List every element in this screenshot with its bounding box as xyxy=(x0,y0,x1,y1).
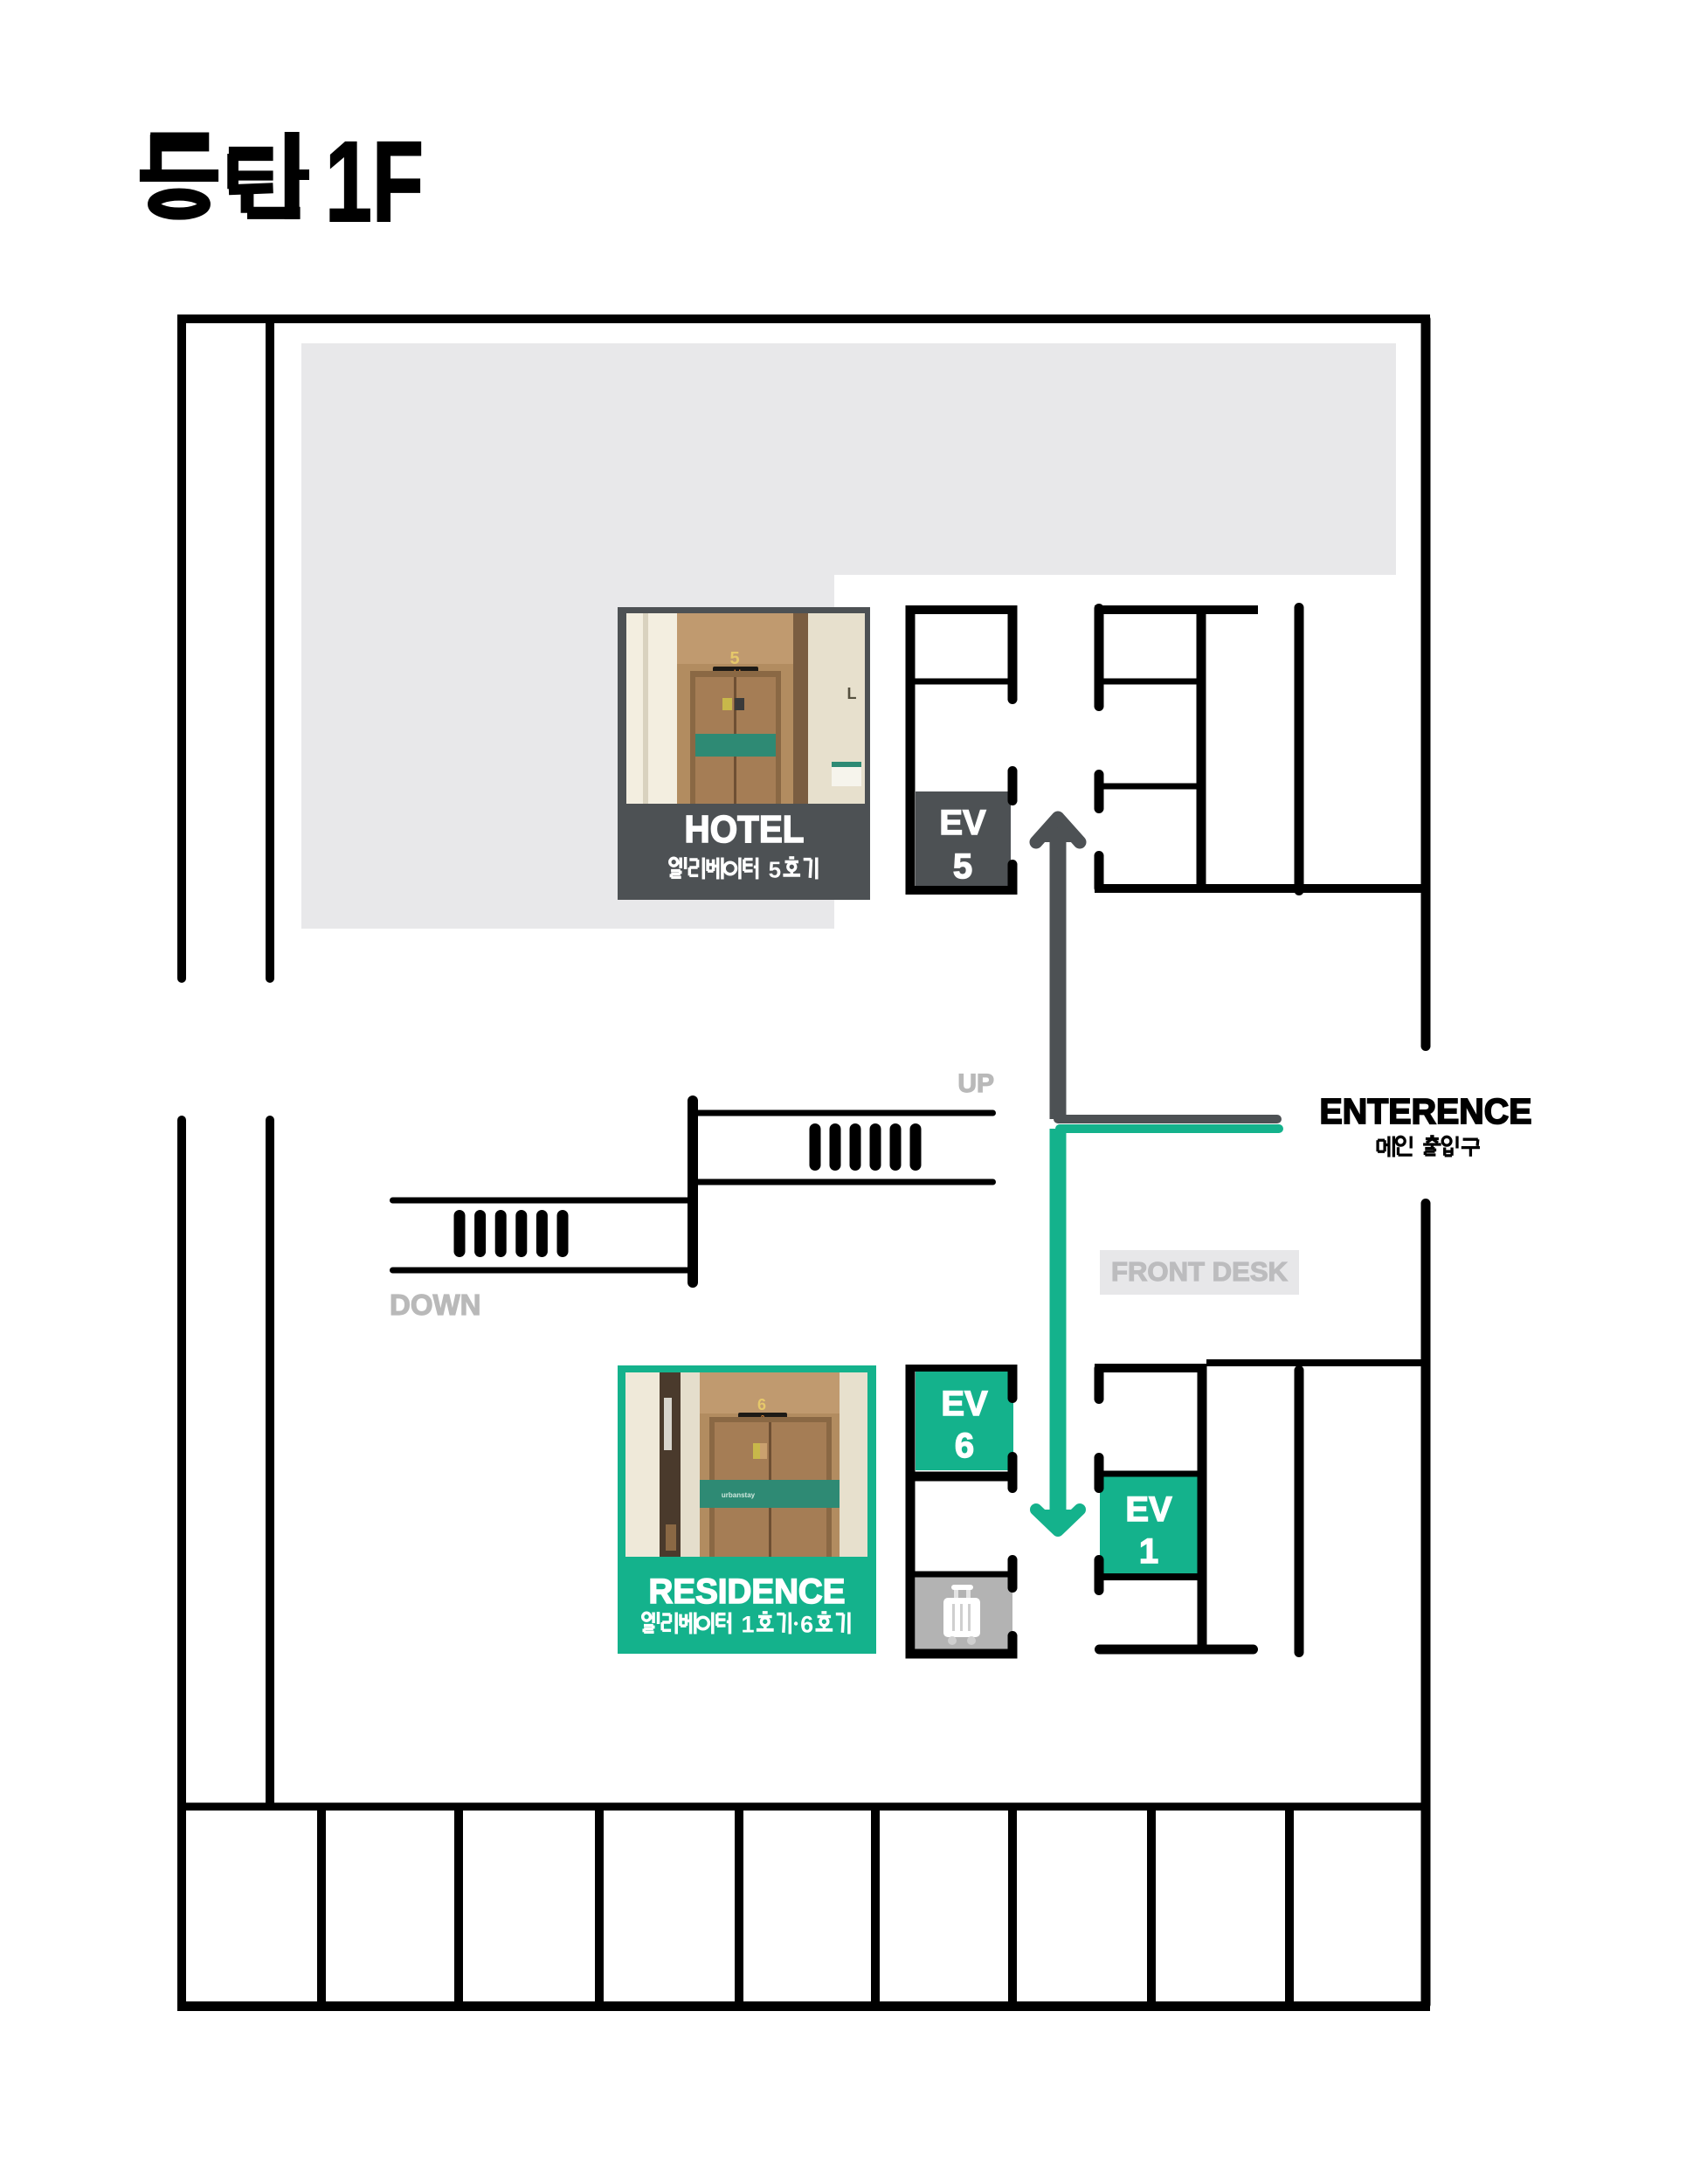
svg-text:UP: UP xyxy=(957,1069,994,1098)
svg-text:1F: 1F xyxy=(325,117,424,245)
svg-text:urbanstay: urbanstay xyxy=(722,1491,756,1499)
svg-text:EV: EV xyxy=(939,804,986,842)
svg-text:EV: EV xyxy=(941,1385,988,1423)
svg-text:5: 5 xyxy=(729,649,739,668)
svg-text:ENTERENCE: ENTERENCE xyxy=(1320,1091,1532,1131)
svg-text:6: 6 xyxy=(955,1427,974,1465)
svg-text:EV: EV xyxy=(1125,1490,1172,1529)
svg-text:1: 1 xyxy=(742,1611,755,1637)
svg-text:DOWN: DOWN xyxy=(390,1289,480,1321)
svg-text:6: 6 xyxy=(800,1611,813,1637)
svg-text:FRONT DESK: FRONT DESK xyxy=(1111,1256,1289,1287)
svg-text:HOTEL: HOTEL xyxy=(685,808,805,851)
svg-text:5: 5 xyxy=(769,856,781,882)
svg-text:L: L xyxy=(847,685,857,702)
svg-text:1: 1 xyxy=(1139,1532,1158,1571)
svg-text:5: 5 xyxy=(953,847,972,886)
svg-text:6: 6 xyxy=(757,1396,766,1413)
svg-text:RESIDENCE: RESIDENCE xyxy=(649,1572,846,1611)
